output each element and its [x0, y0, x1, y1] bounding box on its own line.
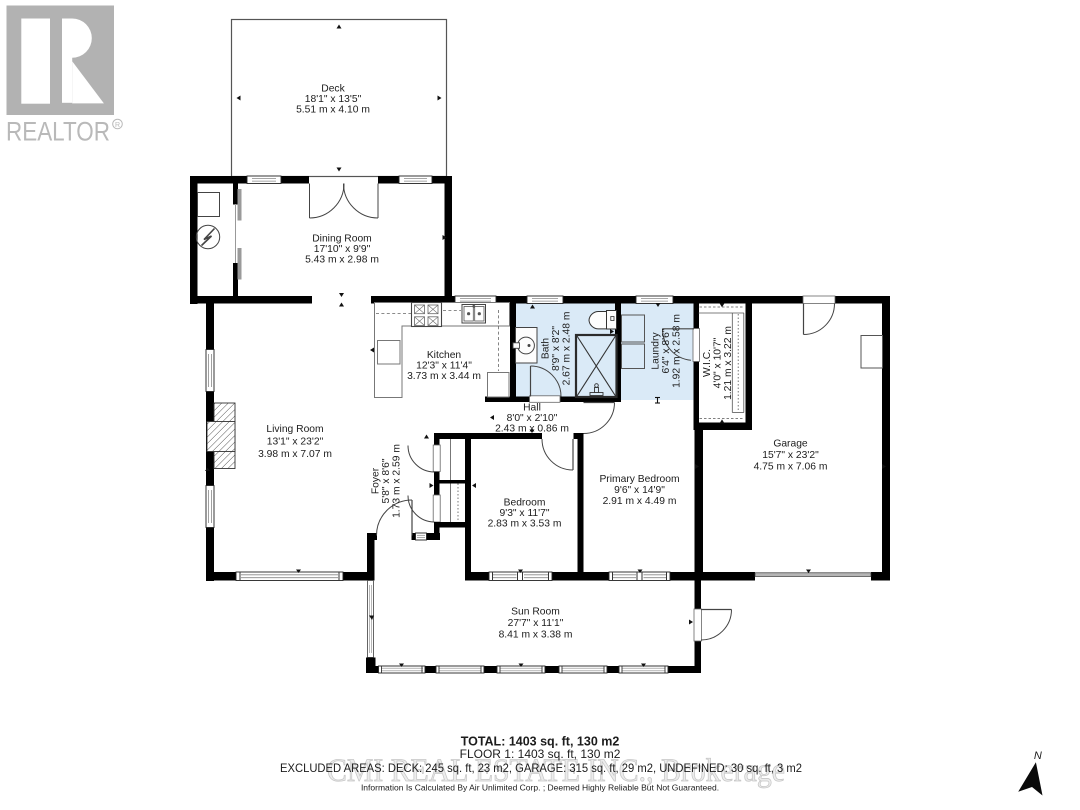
svg-text:1.73 m x 2.59 m: 1.73 m x 2.59 m — [392, 444, 403, 518]
svg-text:8.41 m x 3.38 m: 8.41 m x 3.38 m — [499, 630, 573, 641]
svg-text:12'3" x 11'4": 12'3" x 11'4" — [416, 361, 472, 372]
svg-text:Kitchen: Kitchen — [427, 350, 462, 361]
svg-text:4'0" x 10'7": 4'0" x 10'7" — [713, 337, 724, 388]
svg-text:13'1" x 23'2": 13'1" x 23'2" — [267, 437, 324, 448]
svg-text:Hall: Hall — [523, 403, 541, 414]
svg-text:2.83 m x 3.53 m: 2.83 m x 3.53 m — [488, 519, 562, 530]
svg-text:6'4" x 8'6": 6'4" x 8'6" — [661, 328, 672, 373]
svg-text:W.I.C.: W.I.C. — [702, 349, 713, 377]
svg-text:Bedroom: Bedroom — [504, 498, 546, 509]
svg-text:N: N — [1034, 750, 1042, 762]
svg-text:Primary Bedroom: Primary Bedroom — [599, 474, 679, 485]
svg-text:R: R — [115, 122, 120, 129]
svg-text:REALTOR: REALTOR — [6, 117, 110, 147]
svg-text:4.75 m x 7.06 m: 4.75 m x 7.06 m — [754, 462, 828, 473]
svg-text:Information Is Calculated By A: Information Is Calculated By Air Unlimit… — [361, 783, 719, 793]
svg-text:8'0" x 2'10": 8'0" x 2'10" — [507, 413, 558, 424]
svg-text:3.73 m x 3.44 m: 3.73 m x 3.44 m — [407, 371, 481, 382]
svg-text:5'8" x 8'6": 5'8" x 8'6" — [381, 458, 392, 503]
svg-text:Sun Room: Sun Room — [511, 607, 560, 618]
svg-text:Bath: Bath — [541, 338, 552, 359]
svg-text:Deck: Deck — [321, 84, 345, 95]
svg-text:9'3" x 11'7": 9'3" x 11'7" — [500, 508, 550, 519]
svg-text:3.98 m x 7.07 m: 3.98 m x 7.07 m — [258, 449, 332, 460]
svg-text:Foyer: Foyer — [371, 467, 382, 494]
svg-text:Living Room: Living Room — [266, 424, 323, 435]
svg-text:FLOOR 1: 1403 sq. ft, 130 m2: FLOOR 1: 1403 sq. ft, 130 m2 — [460, 747, 621, 761]
svg-text:5.51 m x 4.10 m: 5.51 m x 4.10 m — [296, 105, 370, 116]
svg-text:2.91 m x 4.49 m: 2.91 m x 4.49 m — [603, 496, 677, 507]
svg-text:2.67 m x 2.48 m: 2.67 m x 2.48 m — [562, 312, 573, 386]
svg-text:1.92 m x 2.58 m: 1.92 m x 2.58 m — [672, 314, 683, 388]
svg-text:15'7" x 23'2": 15'7" x 23'2" — [762, 450, 819, 461]
svg-text:EXCLUDED AREAS: DECK: 245 sq.: EXCLUDED AREAS: DECK: 245 sq. ft, 23 m2,… — [280, 761, 802, 775]
svg-text:5.43 m x 2.98 m: 5.43 m x 2.98 m — [305, 255, 379, 266]
svg-text:1.21 m x 3.22 m: 1.21 m x 3.22 m — [723, 326, 734, 400]
svg-text:8'9" x 8'2": 8'9" x 8'2" — [551, 326, 562, 371]
svg-text:27'7" x 11'1": 27'7" x 11'1" — [508, 618, 564, 629]
svg-text:17'10" x 9'9": 17'10" x 9'9" — [314, 244, 371, 255]
svg-text:18'1" x 13'5": 18'1" x 13'5" — [305, 94, 362, 105]
svg-text:9'6" x 14'9": 9'6" x 14'9" — [614, 485, 665, 496]
svg-text:Dining Room: Dining Room — [312, 234, 372, 245]
svg-text:Garage: Garage — [773, 439, 808, 450]
svg-text:Laundry: Laundry — [651, 332, 662, 370]
